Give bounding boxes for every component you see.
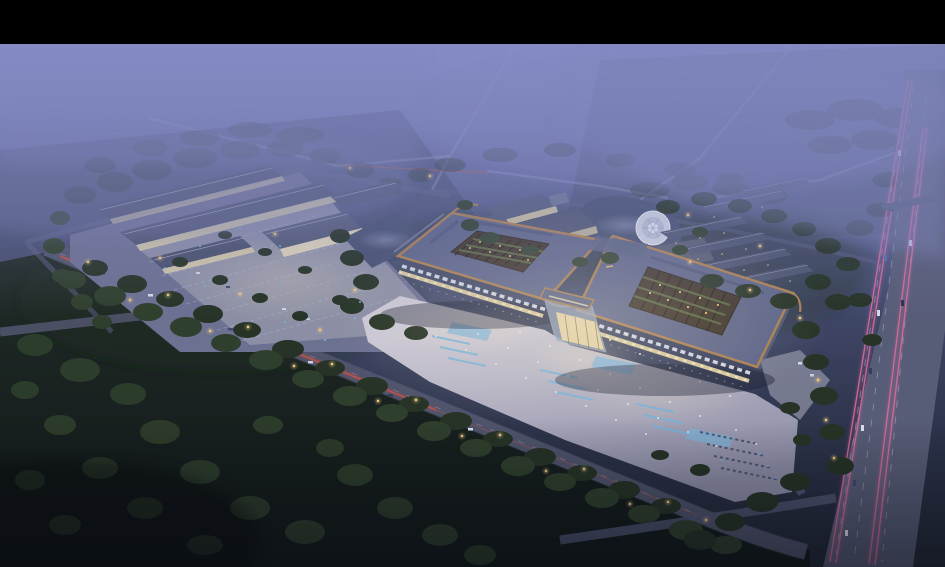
- purple-tint: [0, 44, 945, 567]
- rendering-frame: [0, 0, 945, 567]
- letterbox-bar-top: [0, 0, 945, 44]
- aerial-rendering: [0, 0, 945, 567]
